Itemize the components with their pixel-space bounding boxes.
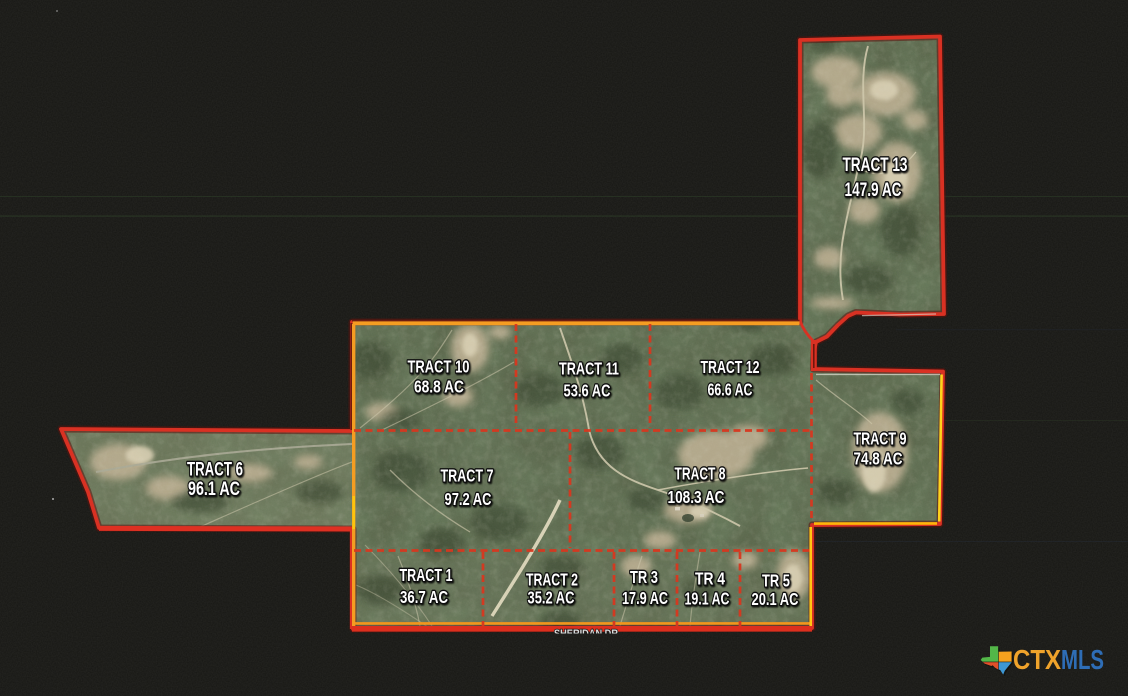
svg-text:TRACT 7: TRACT 7 — [441, 466, 494, 486]
svg-text:TRACT 2: TRACT 2 — [526, 570, 578, 590]
svg-text:96.1 AC: 96.1 AC — [188, 479, 240, 500]
svg-text:TRACT 1: TRACT 1 — [400, 565, 453, 585]
svg-text:TR 5: TR 5 — [762, 571, 790, 591]
svg-text:CTX: CTX — [1013, 644, 1061, 675]
svg-text:36.7 AC: 36.7 AC — [400, 587, 448, 607]
svg-text:97.2 AC: 97.2 AC — [445, 489, 492, 509]
svg-text:74.8 AC: 74.8 AC — [854, 449, 903, 469]
svg-text:147.9 AC: 147.9 AC — [845, 180, 902, 201]
svg-text:35.2 AC: 35.2 AC — [528, 588, 575, 608]
svg-text:TRACT 12: TRACT 12 — [701, 357, 760, 377]
svg-text:TRACT 9: TRACT 9 — [854, 429, 907, 449]
svg-text:19.1 AC: 19.1 AC — [685, 589, 730, 609]
svg-text:17.9 AC: 17.9 AC — [622, 588, 668, 608]
svg-text:TRACT 13: TRACT 13 — [843, 155, 908, 176]
svg-text:MLS: MLS — [1061, 644, 1104, 675]
svg-text:TRACT 6: TRACT 6 — [187, 460, 243, 481]
svg-text:TRACT 11: TRACT 11 — [559, 359, 619, 379]
svg-text:68.8 AC: 68.8 AC — [414, 377, 464, 397]
svg-text:TRACT 10: TRACT 10 — [408, 357, 470, 377]
svg-text:TRACT 8: TRACT 8 — [675, 464, 726, 484]
svg-text:108.3 AC: 108.3 AC — [668, 487, 725, 507]
svg-text:20.1 AC: 20.1 AC — [752, 589, 799, 609]
svg-text:53.6 AC: 53.6 AC — [564, 381, 611, 401]
svg-text:66.6 AC: 66.6 AC — [708, 380, 753, 400]
svg-text:TR 4: TR 4 — [695, 569, 725, 589]
svg-text:TR 3: TR 3 — [630, 567, 658, 587]
